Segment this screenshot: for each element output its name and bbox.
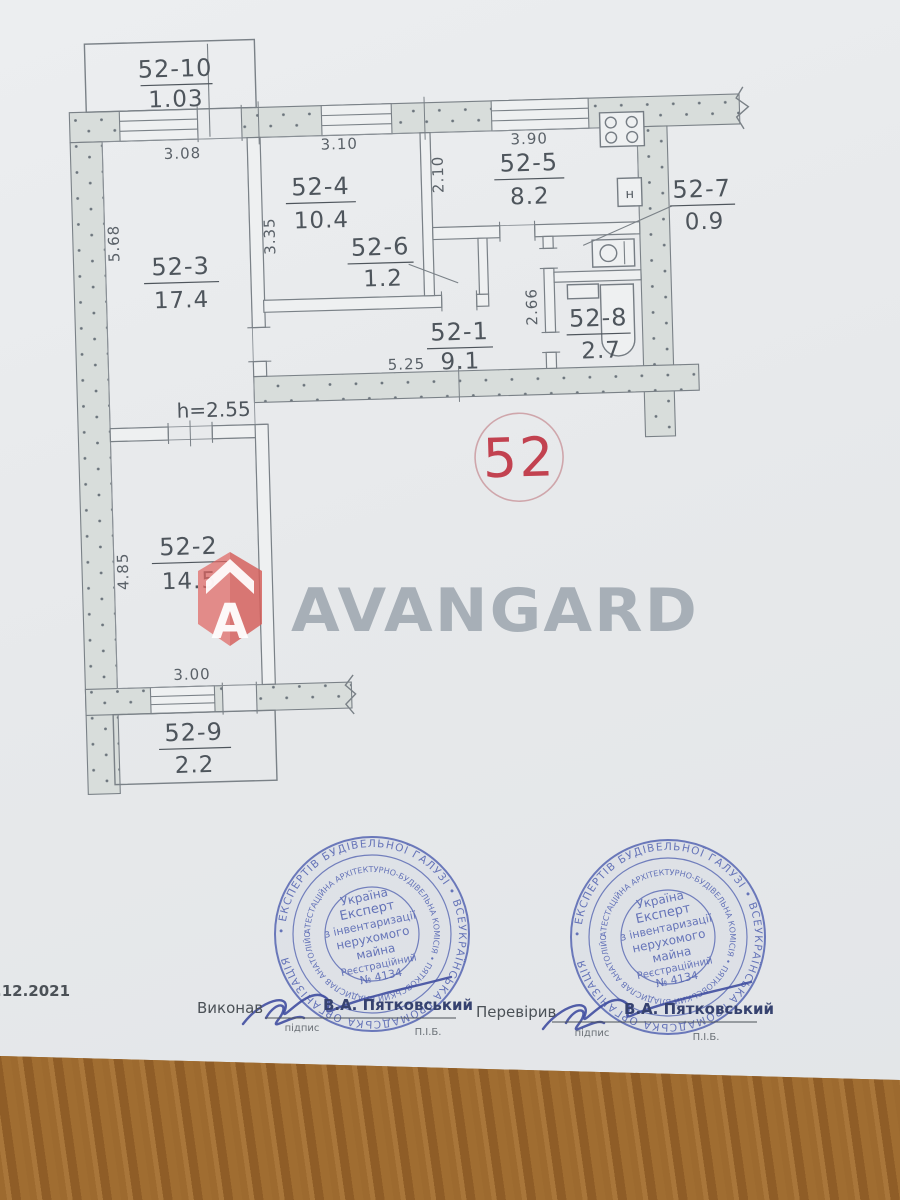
- dim-3-90: 3.90: [510, 129, 548, 148]
- dim-2-66: 2.66: [522, 288, 541, 326]
- dim-5-68: 5.68: [104, 225, 123, 263]
- room-label-52-9: 52-9 2.2: [158, 717, 232, 779]
- dim-3-00: 3.00: [173, 665, 211, 684]
- unit-number-circle: 52: [474, 412, 564, 502]
- window-52-2: [150, 686, 215, 714]
- executed-name: В.А. Пятковський: [323, 996, 473, 1014]
- svg-text:52-4: 52-4: [291, 172, 350, 202]
- dim-4-85: 4.85: [114, 552, 133, 590]
- svg-text:2.7: 2.7: [581, 337, 621, 364]
- watermark-brand-text: AVANGARD: [291, 576, 699, 646]
- room-label-52-1: 52-1 9.1: [426, 317, 494, 376]
- svg-text:52-7: 52-7: [672, 174, 731, 204]
- svg-text:52-5: 52-5: [499, 148, 558, 178]
- svg-text:52-10: 52-10: [137, 54, 213, 84]
- svg-text:1.03: 1.03: [148, 86, 204, 114]
- checked-name: В.А. Пятковський: [624, 1000, 774, 1018]
- svg-text:52-9: 52-9: [164, 718, 223, 748]
- scanned-floorplan-page: н 52-10 1.03 52-3 17.4: [0, 0, 900, 1200]
- signature-caption-left: підпис: [285, 1022, 320, 1034]
- dim-5-25: 5.25: [387, 355, 425, 374]
- dim-2-10: 2.10: [429, 155, 448, 193]
- executed-label: Виконав: [197, 999, 263, 1017]
- window-52-3: [119, 109, 198, 141]
- balcony-door-top: [197, 105, 242, 142]
- room-label-52-7: 52-7 0.9: [669, 174, 736, 236]
- svg-text:9.1: 9.1: [440, 348, 480, 375]
- svg-text:1.2: 1.2: [363, 265, 403, 292]
- signature-caption-right: підпис: [575, 1027, 610, 1039]
- svg-text:52-6: 52-6: [351, 232, 410, 262]
- unit-number: 52: [482, 425, 556, 490]
- floorplan-drawing: н 52-10 1.03 52-3 17.4: [67, 26, 767, 795]
- name-caption-right: П.І.Б.: [693, 1032, 720, 1043]
- svg-text:52-2: 52-2: [159, 532, 218, 562]
- svg-text:52-1: 52-1: [430, 317, 489, 347]
- checked-label: Перевірив: [476, 1003, 556, 1021]
- room-label-52-4: 52-4 10.4: [285, 172, 357, 235]
- name-caption-left: П.І.Б.: [415, 1027, 442, 1038]
- balcony-door-bottom: [222, 682, 257, 715]
- washing-machine-icon: [592, 239, 635, 267]
- svg-text:52-8: 52-8: [569, 303, 628, 333]
- svg-text:0.9: 0.9: [684, 208, 724, 235]
- room-label-52-10: 52-10 1.03: [137, 54, 213, 114]
- svg-text:10.4: 10.4: [293, 207, 349, 235]
- svg-text:17.4: 17.4: [154, 287, 210, 315]
- ceiling-height-note: h=2.55: [176, 397, 251, 423]
- room-label-52-3: 52-3 17.4: [143, 252, 220, 315]
- water-heater-icon: н: [617, 178, 642, 207]
- avangard-logo-icon: A: [198, 552, 262, 650]
- dim-3-08: 3.08: [164, 144, 202, 163]
- room-label-52-6: 52-6 1.2: [347, 232, 415, 293]
- room-label-52-5: 52-5 8.2: [493, 148, 565, 211]
- logo-letter: A: [211, 594, 248, 650]
- document-date: .12.2021: [0, 982, 70, 1000]
- dim-3-10: 3.10: [320, 135, 358, 154]
- svg-text:8.2: 8.2: [510, 183, 550, 210]
- water-heater-label: н: [625, 187, 634, 202]
- dim-3-35: 3.35: [260, 217, 279, 255]
- floorplan-svg: н 52-10 1.03 52-3 17.4: [0, 0, 900, 1200]
- svg-text:2.2: 2.2: [174, 752, 214, 779]
- window-52-4: [321, 104, 392, 136]
- svg-text:52-3: 52-3: [151, 252, 210, 282]
- stove-icon: [599, 112, 644, 147]
- window-52-5: [491, 98, 589, 131]
